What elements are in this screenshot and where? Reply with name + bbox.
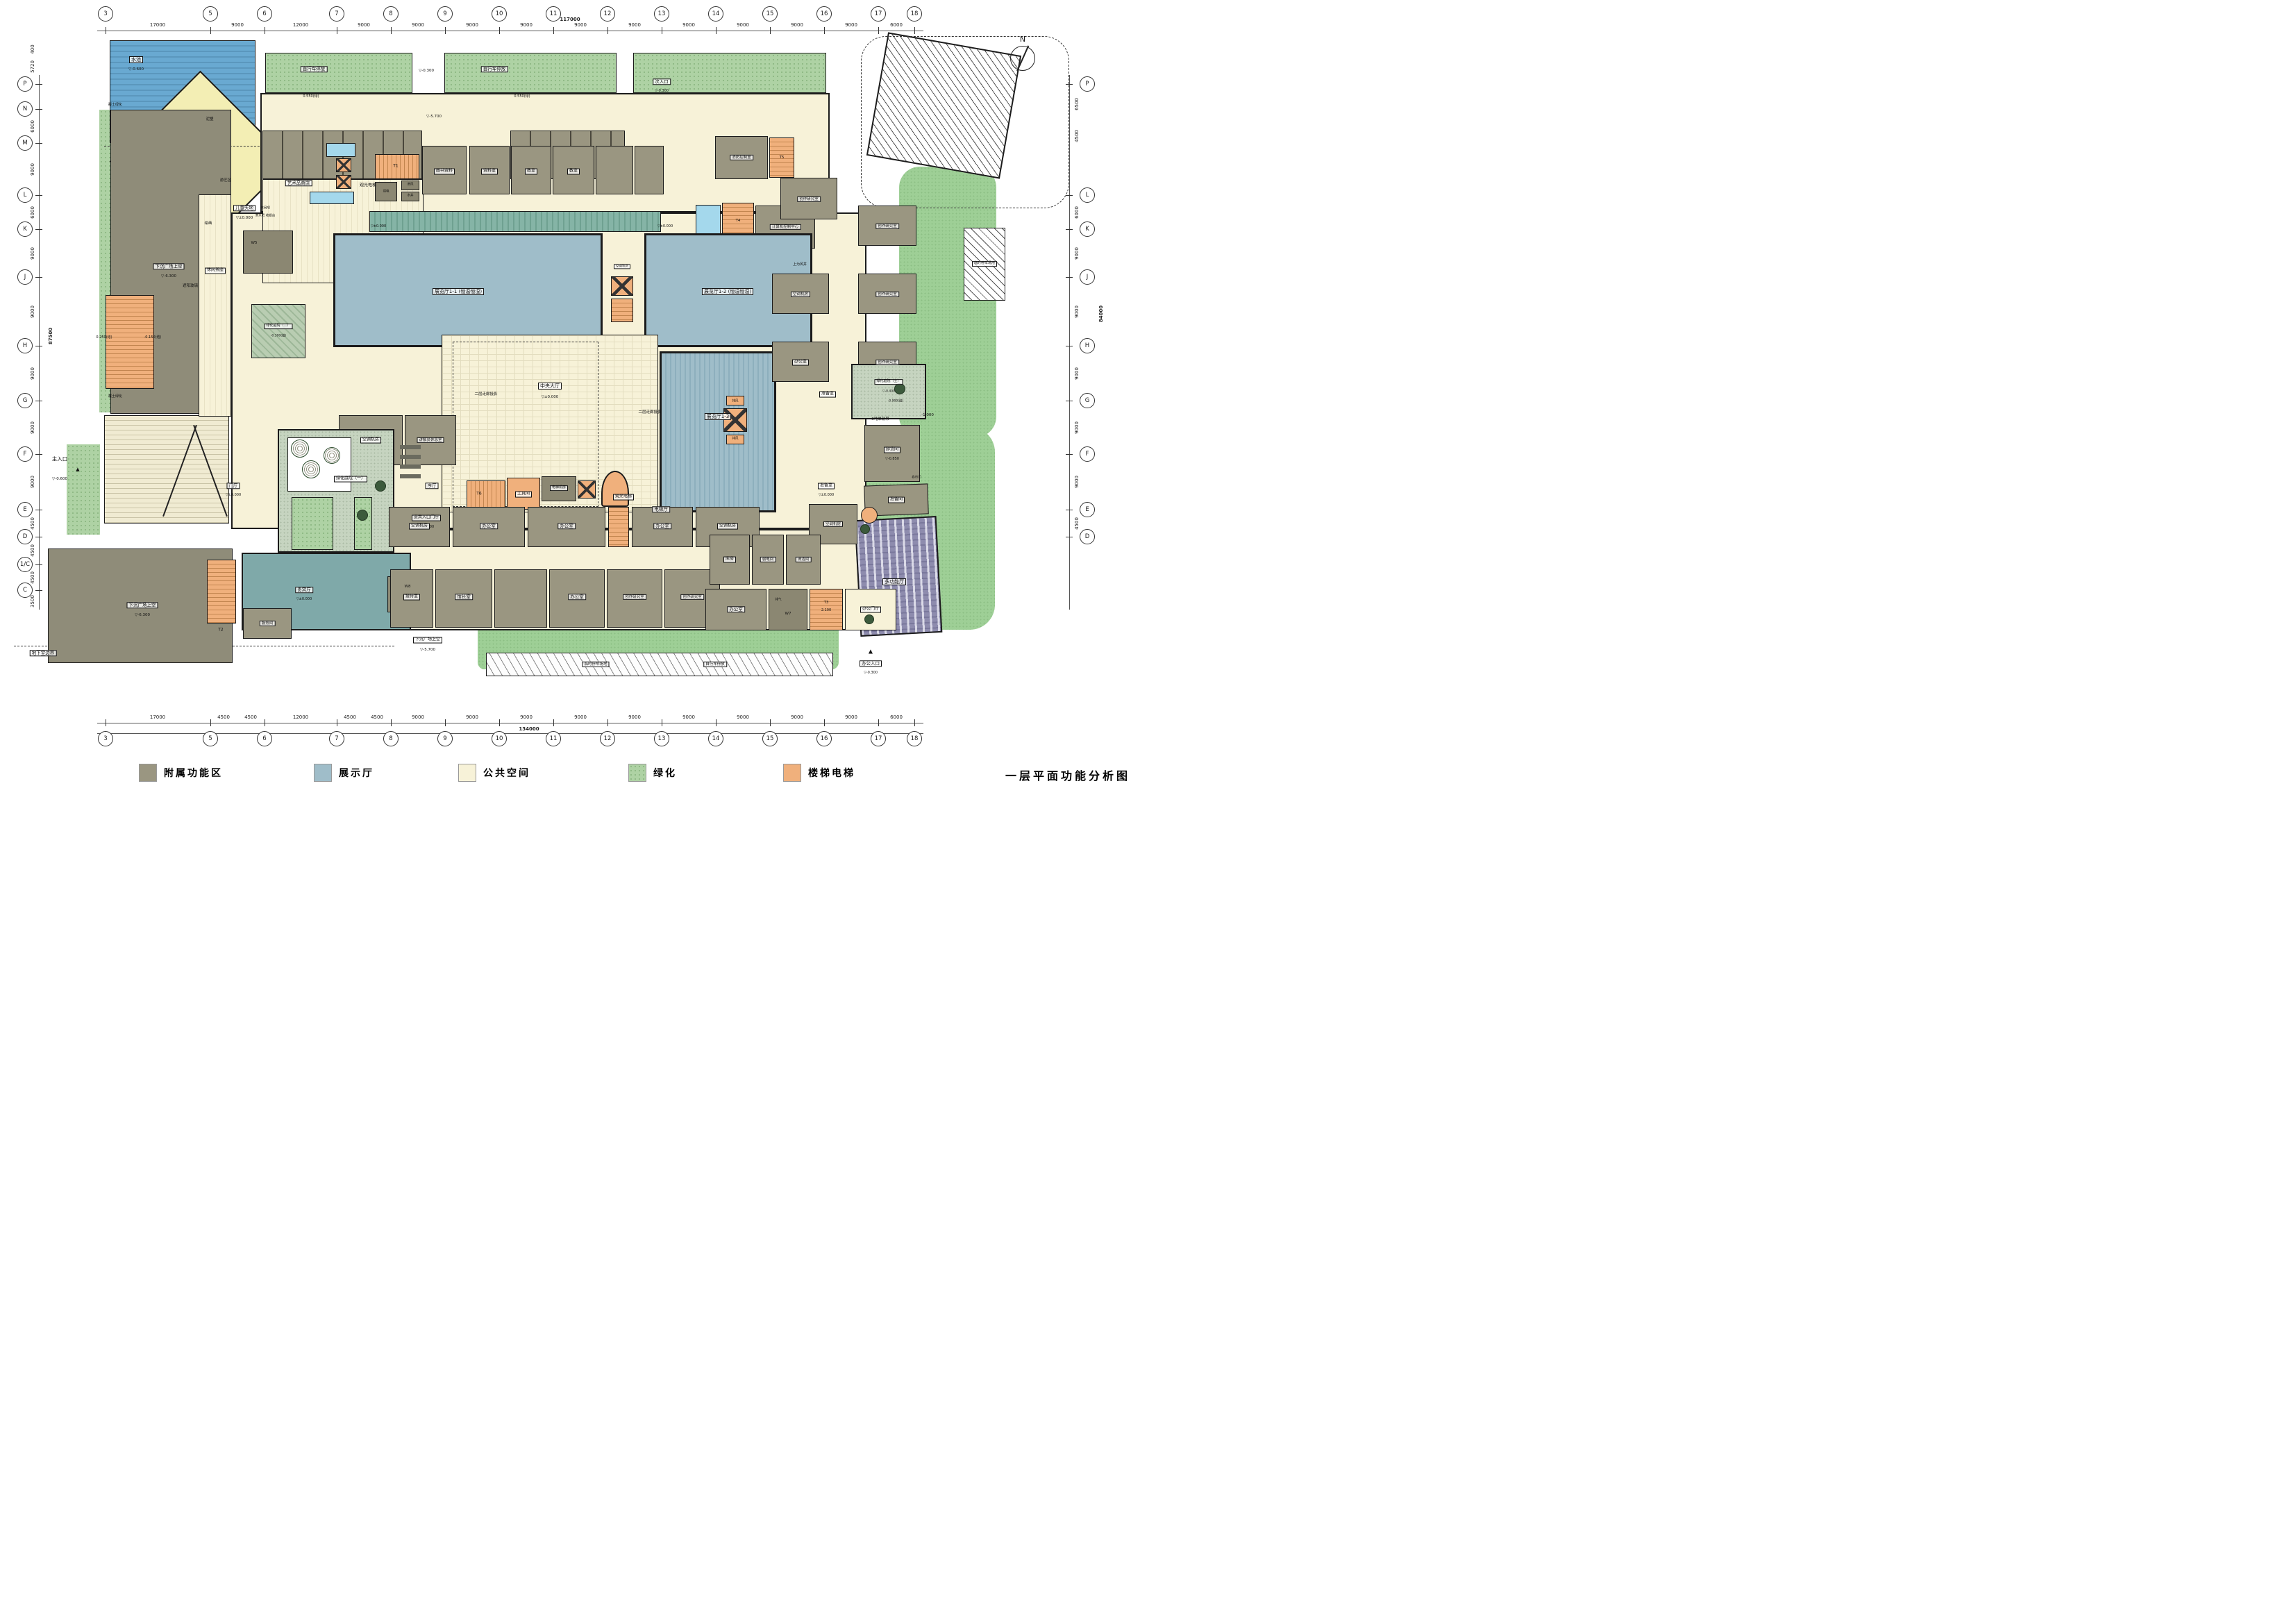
grid-row-right-H: H <box>1080 338 1095 353</box>
dim-top: 9000 <box>412 22 424 28</box>
plan-label: 排风 <box>732 437 739 440</box>
grid-row-1/C: 1/C <box>17 557 33 572</box>
grid-col-17: 17 <box>871 6 886 22</box>
dim-left: 4500 <box>30 517 35 530</box>
plan-label: 中央大厅 <box>538 383 562 390</box>
hall-1-3 <box>660 351 776 512</box>
plan-label: 遮阳玻璃 <box>183 284 198 288</box>
grid-row-right-L: L <box>1080 187 1095 203</box>
plan-label: 地下室边界 <box>30 650 57 656</box>
grid-row-F: F <box>17 446 33 462</box>
plan-label: 图书资料 <box>434 169 455 175</box>
grid-col-7: 7 <box>329 6 344 22</box>
grid-row-M: M <box>17 135 33 151</box>
dim-right: 9000 <box>1074 367 1080 380</box>
grid-col-11: 11 <box>546 6 561 22</box>
grid-tick <box>35 401 42 401</box>
plan-label: 下沉广场上空 <box>127 602 158 608</box>
grid-tick <box>1066 195 1073 196</box>
dim-top-total: 117000 <box>560 17 580 22</box>
stair-sunken-left <box>106 295 154 389</box>
plan-label: ▽±0.000 <box>296 598 312 602</box>
plan-label: 覆土绿化 <box>108 395 122 399</box>
grid-tick <box>553 27 554 34</box>
grid-tick <box>265 27 265 34</box>
plan-label: T5 <box>780 156 785 160</box>
plan-label: 创作研究室 <box>680 594 704 600</box>
plan-label: 办公室 <box>480 523 498 529</box>
dim-bottom: 9000 <box>682 714 695 720</box>
north-arrow: N <box>1002 35 1044 83</box>
plan-label: 主入口 <box>52 457 68 463</box>
dim-bottom: 9000 <box>574 714 587 720</box>
plan-label: 清洁间 <box>796 557 812 562</box>
plan-label: 讲解员休息室 <box>417 437 444 443</box>
grid-col-bottom-5: 5 <box>203 731 218 746</box>
legend-item-5: 楼梯电梯 <box>783 764 855 782</box>
floor-plan-canvas: N 一层平面功能分析图 水池▽-0.600自行车停放自行车停放▽-0.300▽-… <box>0 0 1148 812</box>
elev-freight-2 <box>578 480 596 499</box>
dim-top: 6000 <box>890 22 903 28</box>
dim-left: 9000 <box>30 305 35 318</box>
bench-3 <box>400 464 421 469</box>
grid-chain-bottom-1 <box>97 723 923 723</box>
plan-label: 门厅 <box>227 483 240 489</box>
plan-label: 多功能厅 <box>882 578 906 585</box>
plan-label: 艺术品商店 <box>285 180 312 186</box>
grid-tick <box>35 229 42 230</box>
plan-label: 创作研究室 <box>797 196 821 202</box>
grid-tick <box>662 719 662 726</box>
plan-label: 下沉广场上空 <box>413 637 442 644</box>
plan-label: T2 <box>218 628 223 633</box>
plan-label: 茶水吧 收银台 <box>255 214 275 217</box>
court-1-green-a <box>292 497 333 550</box>
legend-item-4: 绿化 <box>628 764 677 782</box>
grid-row-right-F: F <box>1080 446 1095 462</box>
grid-tick <box>35 195 42 196</box>
grid-tick <box>265 719 265 726</box>
plan-label: 服务间 <box>260 621 276 626</box>
tree-icon <box>302 460 320 478</box>
dim-right: 9000 <box>1074 247 1080 260</box>
plan-label: ▽-0.600 <box>128 67 144 72</box>
grid-tick <box>35 454 42 455</box>
grid-tick <box>1066 537 1073 537</box>
dim-left: 9000 <box>30 421 35 434</box>
plan-label: ▽-5.700 <box>420 648 435 652</box>
grid-row-D: D <box>17 529 33 544</box>
plan-label: ▽±0.000 <box>542 395 559 399</box>
plan-label: T1 <box>393 165 398 169</box>
dim-top: 9000 <box>574 22 587 28</box>
bench-4 <box>400 474 421 478</box>
plan-label: 办公室 <box>558 523 576 529</box>
grid-row-right-E: E <box>1080 502 1095 517</box>
grid-col-13: 13 <box>654 6 669 22</box>
grid-tick <box>35 143 42 144</box>
green-left-lower <box>67 444 100 535</box>
dim-left: 400 <box>30 44 35 53</box>
plan-label: 观光电梯 <box>613 494 634 501</box>
grid-col-bottom-10: 10 <box>492 731 507 746</box>
plan-label: 馆长室 <box>455 594 473 600</box>
plan-label: 弱电 <box>383 190 389 193</box>
plan-label: 创作研究室 <box>623 594 646 600</box>
plan-label: 计算机控制中心 <box>770 224 801 230</box>
grid-col-5: 5 <box>203 6 218 22</box>
dim-right: 9000 <box>1074 305 1080 318</box>
dim-top: 9000 <box>845 22 857 28</box>
grid-tick <box>35 277 42 278</box>
elev-sightseeing-2 <box>336 175 351 189</box>
legend-item-3: 公共空间 <box>458 764 530 782</box>
plan-label: -0.900(结) <box>888 399 904 403</box>
tree-icon <box>375 480 386 492</box>
plan-label: 贵宾厅 <box>295 587 313 593</box>
grid-tick <box>716 27 717 34</box>
room-top-extra-1 <box>596 146 633 194</box>
plan-label: 自行车停放 <box>481 66 508 72</box>
dim-left: 4500 <box>30 544 35 557</box>
grid-chain-left <box>39 75 40 610</box>
dim-left: 4500 <box>30 571 35 584</box>
plan-label: 办公入口 <box>860 660 882 667</box>
grid-tick <box>391 27 392 34</box>
legend-swatch-1 <box>139 764 157 782</box>
room-row2-unlabeled <box>494 569 547 628</box>
plan-label: 观光电梯 <box>360 184 376 189</box>
grid-tick <box>824 27 825 34</box>
grid-col-16: 16 <box>816 6 832 22</box>
plan-label: ▽-0.400 <box>882 390 895 393</box>
grid-col-bottom-8: 8 <box>383 731 399 746</box>
plan-label: 弱电间 <box>760 557 776 562</box>
plan-label: 空调机房 <box>791 292 810 297</box>
tea-lounge-strip <box>199 194 231 417</box>
grid-tick <box>210 719 211 726</box>
court-2-hatched <box>251 304 305 358</box>
plan-label: ▽-0.300 <box>655 90 669 94</box>
grid-tick <box>106 719 106 726</box>
plan-label: W7 <box>785 612 791 616</box>
plan-label: 绿化庭院（主） <box>874 379 903 385</box>
grid-tick <box>1066 277 1073 278</box>
dim-top: 9000 <box>737 22 749 28</box>
plan-label: 儿童天地 <box>233 205 255 211</box>
dim-bottom: 9000 <box>845 714 857 720</box>
grid-row-C: C <box>17 583 33 598</box>
dim-left: 9000 <box>30 163 35 176</box>
plan-label: 准备间 <box>888 497 905 503</box>
dim-right-total: 84000 <box>1098 305 1104 322</box>
plan-label: ▲ <box>76 467 79 472</box>
bike-parking-strip-2 <box>444 53 617 93</box>
grid-tick <box>914 27 915 34</box>
grid-tick <box>824 719 825 726</box>
plan-label: 办公室 <box>653 523 671 529</box>
grid-col-bottom-17: 17 <box>871 731 886 746</box>
grid-tick <box>1066 346 1073 346</box>
dim-bottom: 4500 <box>371 714 383 720</box>
plan-label: ▽-0.850 <box>885 458 899 462</box>
plan-label: 接待室 <box>403 594 420 601</box>
dim-left: 9000 <box>30 247 35 260</box>
grid-col-12: 12 <box>600 6 615 22</box>
grid-tick <box>337 27 337 34</box>
stair-spiral <box>861 507 878 524</box>
dim-left: 5720 <box>30 60 35 73</box>
legend-swatch-3 <box>458 764 476 782</box>
plan-label: ▽-6.300 <box>135 613 150 617</box>
grid-row-L: L <box>17 187 33 203</box>
grid-col-9: 9 <box>437 6 453 22</box>
grid-col-bottom-18: 18 <box>907 731 922 746</box>
grid-row-H: H <box>17 338 33 353</box>
plan-label: 水井 <box>408 194 414 197</box>
grid-tick <box>878 719 879 726</box>
dim-left: 9000 <box>30 367 35 380</box>
dim-left: 9000 <box>30 476 35 488</box>
grid-col-bottom-14: 14 <box>708 731 723 746</box>
plan-label: T3 <box>824 601 829 605</box>
legend-swatch-2 <box>314 764 332 782</box>
plan-label: 临时停车场地 <box>972 261 997 267</box>
plan-label: ▽±0.000 <box>657 225 673 229</box>
dim-bottom: 12000 <box>293 714 308 720</box>
plan-label: 资料室 <box>481 169 498 175</box>
plan-label: ▽±0.000 <box>371 225 386 229</box>
plan-label: 游艺区 <box>220 178 232 183</box>
plan-label: 卸货间 <box>884 447 900 453</box>
plan-label: T6 <box>476 492 481 497</box>
plan-label: 排气 <box>776 598 782 601</box>
north-label: N <box>1020 35 1025 44</box>
plan-label: 0.250(结) <box>96 336 112 340</box>
grid-tick <box>499 719 500 726</box>
dim-top: 9000 <box>466 22 478 28</box>
plan-label: W8 <box>405 585 411 589</box>
grid-row-G: G <box>17 393 33 408</box>
grid-tick <box>1066 510 1073 510</box>
plan-label: 进风 <box>408 183 414 186</box>
plan-label: 办公室 <box>568 594 586 600</box>
grid-row-P: P <box>17 76 33 92</box>
grid-col-bottom-16: 16 <box>816 731 832 746</box>
plan-label: 上为风井 <box>793 263 807 267</box>
grid-row-N: N <box>17 101 33 117</box>
dim-right: 4500 <box>1074 517 1080 530</box>
room-top-extra-2 <box>635 146 664 194</box>
grid-row-K: K <box>17 221 33 237</box>
dim-bottom: 9000 <box>628 714 641 720</box>
stair-mid <box>611 299 633 322</box>
plan-label: 办公室 <box>727 606 745 612</box>
legend-swatch-4 <box>628 764 646 782</box>
plan-label: 下沉广场上空 <box>153 263 185 269</box>
grid-tick <box>607 27 608 34</box>
grid-row-right-D: D <box>1080 529 1095 544</box>
grid-tick <box>35 109 42 110</box>
grid-tick <box>35 346 42 346</box>
plan-label: T4 <box>736 219 741 223</box>
grid-tick <box>35 510 42 510</box>
legend-item-1: 附属功能区 <box>139 764 223 782</box>
bench-1 <box>400 445 421 449</box>
plan-label: ▽-0.300 <box>864 671 878 676</box>
plan-label: 展览厅1-1 (恒温恒湿) <box>433 288 484 295</box>
plan-label: 空调机房 <box>360 437 381 444</box>
plan-label: 覆土绿化 <box>108 103 122 108</box>
plan-label: ▽-0.600 <box>52 477 67 481</box>
plan-label: 二层走廊投影 <box>638 410 661 415</box>
plan-label: 消防控制室 <box>730 155 753 160</box>
grid-col-8: 8 <box>383 6 399 22</box>
dim-top: 9000 <box>231 22 244 28</box>
grid-row-right-G: G <box>1080 393 1095 408</box>
grid-tick <box>716 719 717 726</box>
dim-bottom: 17000 <box>150 714 165 720</box>
plan-label: 排风 <box>732 399 739 403</box>
plan-label: 泥塑 <box>206 117 213 122</box>
dim-top: 9000 <box>682 22 695 28</box>
grid-tick <box>35 590 42 591</box>
grid-row-right-P: P <box>1080 76 1095 92</box>
grid-col-bottom-7: 7 <box>329 731 344 746</box>
plan-label: -1.000 <box>921 413 934 417</box>
grid-col-bottom-3: 3 <box>98 731 113 746</box>
plan-label: 卷帘门 <box>912 476 921 479</box>
dim-right: 6000 <box>1074 206 1080 219</box>
plan-label: 库房 <box>723 557 736 563</box>
plan-label: 绿化庭院（二） <box>264 324 292 329</box>
grid-row-right-K: K <box>1080 221 1095 237</box>
legend-label-1: 附属功能区 <box>164 766 223 780</box>
elev-sightseeing-1 <box>336 158 351 172</box>
plan-label: 空调机房 <box>717 524 738 530</box>
plan-label: 教室 <box>567 169 580 175</box>
room-w5-toilets <box>243 231 293 274</box>
dim-bottom: 4500 <box>217 714 230 720</box>
dim-top: 12000 <box>293 22 308 28</box>
plan-label: 自行车停放 <box>301 66 328 72</box>
plan-label: 展览厅1-2 (恒温恒湿) <box>702 288 753 295</box>
bike-parking-strip-3 <box>633 53 826 93</box>
plan-label: ▽±0.000 <box>236 216 253 220</box>
plan-label: 创作研究室 <box>875 224 899 229</box>
grid-chain-top <box>97 31 923 31</box>
tree-icon <box>357 510 368 521</box>
dim-top: 9000 <box>520 22 533 28</box>
dim-bottom: 4500 <box>344 714 356 720</box>
plan-label: 2.100 <box>821 609 831 613</box>
dim-bottom: 9000 <box>466 714 478 720</box>
grid-tick <box>445 719 446 726</box>
dim-left-total: 87500 <box>48 328 53 344</box>
grid-col-bottom-9: 9 <box>437 731 453 746</box>
grid-row-J: J <box>17 269 33 285</box>
grid-row-right-J: J <box>1080 269 1095 285</box>
plan-label: 电梯机房 <box>550 485 568 491</box>
grid-col-3: 3 <box>98 6 113 22</box>
plan-label: ▽-0.300 <box>419 69 434 73</box>
grid-col-10: 10 <box>492 6 507 22</box>
grid-tick <box>553 719 554 726</box>
plan-label: 办公室 <box>792 360 809 366</box>
grid-tick <box>770 719 771 726</box>
plan-label: 创作研究室 <box>875 292 899 297</box>
plan-label: 0.550(绿) <box>514 95 530 99</box>
stair-down-mid <box>608 507 629 547</box>
dim-bottom: 9000 <box>412 714 424 720</box>
drawing-title: 一层平面功能分析图 <box>1005 767 1130 783</box>
plan-label: 水池 <box>129 56 143 63</box>
grid-col-bottom-15: 15 <box>762 731 778 746</box>
grid-tick <box>770 27 771 34</box>
stair-t6 <box>467 480 505 508</box>
dim-top: 17000 <box>150 22 165 28</box>
legend-item-2: 展示厅 <box>314 764 374 782</box>
stair-t2 <box>207 560 236 623</box>
plan-label: 临时停车场地 <box>582 662 609 667</box>
grid-chain-bottom-2 <box>97 733 923 734</box>
legend-label-2: 展示厅 <box>339 766 374 780</box>
grid-col-14: 14 <box>708 6 723 22</box>
plan-label: 空调机房 <box>614 264 630 269</box>
legend-swatch-5 <box>783 764 801 782</box>
plan-label: 准备室 <box>819 392 836 398</box>
plan-label: 准备室 <box>818 483 835 489</box>
dim-left: 6000 <box>30 206 35 219</box>
plan-label: 次入口 <box>653 78 671 85</box>
plan-label: 电梯厅 <box>652 506 670 512</box>
plan-label: 自行车停放 <box>703 662 727 667</box>
grid-col-6: 6 <box>257 6 272 22</box>
plan-label: ▽±0.000 <box>819 494 834 498</box>
dim-top: 9000 <box>628 22 641 28</box>
grid-row-E: E <box>17 502 33 517</box>
grid-tick <box>337 719 337 726</box>
legend-label-3: 公共空间 <box>483 766 530 780</box>
tree-icon <box>864 614 874 624</box>
grid-tick <box>914 719 915 726</box>
dim-right: 6500 <box>1074 98 1080 110</box>
dim-bottom: 4500 <box>244 714 257 720</box>
plan-label: 创作研究室 <box>875 360 899 365</box>
grid-col-bottom-6: 6 <box>257 731 272 746</box>
grid-col-bottom-12: 12 <box>600 731 615 746</box>
tree-icon <box>324 447 340 464</box>
water-deco-lower <box>310 192 354 204</box>
elev-freight-mid <box>611 276 633 296</box>
room-w7-toilets <box>769 589 807 630</box>
plan-label: ▽-5.700 <box>426 115 442 119</box>
grid-tick <box>35 84 42 85</box>
grid-tick <box>1066 401 1073 401</box>
dim-right: 4500 <box>1074 130 1080 142</box>
room-unloading <box>864 425 920 482</box>
plan-label: 教室 <box>525 169 537 175</box>
dim-bottom: 6000 <box>890 714 903 720</box>
tree-icon <box>291 440 309 458</box>
grid-tick <box>1066 454 1073 455</box>
bench-2 <box>400 455 421 459</box>
grid-tick <box>391 719 392 726</box>
water-deco-upper <box>326 143 355 157</box>
plan-label: 办公门厅 <box>860 607 881 613</box>
plan-label: -0.150(结) <box>144 336 161 340</box>
dim-bottom-total: 134000 <box>519 726 539 732</box>
